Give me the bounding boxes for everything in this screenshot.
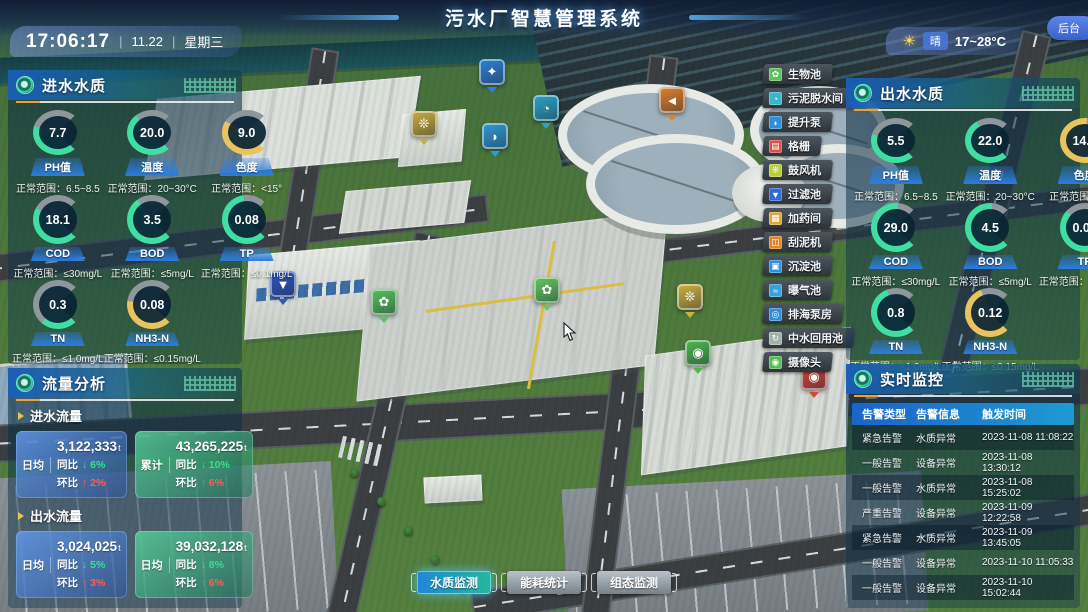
map-building: [339, 180, 471, 234]
pump-marker-icon: ◗: [482, 123, 508, 149]
facility-button-提升泵[interactable]: ◗提升泵: [762, 112, 833, 132]
metric-name: 环比: [57, 575, 78, 590]
arrow-up-icon: ↑ 3%: [82, 577, 105, 589]
alarm-info: 水质异常: [916, 530, 982, 545]
dot-pattern-decoration: [1022, 86, 1074, 101]
flow-card-body: 3,122,333t同比↓ 6%环比↑ 2%: [57, 439, 121, 490]
horn-marker-map-marker[interactable]: ◄: [659, 87, 685, 121]
gauge-label: 色度: [220, 158, 274, 176]
alarm-time: 2023-11-08 13:30:12: [982, 452, 1074, 474]
filter-pool-icon: ▼: [769, 188, 782, 201]
gauge-ring: 5.5: [871, 118, 921, 163]
facility-button-生物池[interactable]: ✿生物池: [762, 64, 833, 84]
map-building: [423, 475, 482, 504]
gauge-value: 0.3: [33, 280, 83, 329]
facility-button-沉淀池[interactable]: ▣沉淀池: [762, 256, 833, 276]
gauge-label: TP: [1058, 255, 1088, 269]
bottom-tab-组态监测[interactable]: 组态监测: [597, 571, 671, 594]
flow-unit: t: [118, 443, 121, 453]
bio-marker-map-marker[interactable]: ✿: [371, 289, 397, 323]
marker-pointer: [809, 392, 819, 398]
gauge-label: PH值: [869, 166, 923, 184]
gauge-色度: 9.0色度正常范围：<15°: [211, 110, 282, 195]
alarm-time: 2023-11-09 13:45:05: [982, 527, 1074, 549]
facility-button-过滤池[interactable]: ▼过滤池: [762, 184, 833, 204]
outlet-water-quality-panel: 出水水质 5.5PH值正常范围：6.5~8.522.0温度正常范围：20~30°…: [846, 78, 1080, 360]
alarm-type: 一般告警: [852, 555, 916, 570]
aeration-pool-icon: ≈: [769, 284, 782, 297]
panel-bullet-icon: [854, 370, 872, 388]
tree: [377, 497, 386, 506]
facility-button-污泥脱水间[interactable]: ◔污泥脱水间: [762, 88, 855, 108]
flow-card-tag: 日均: [141, 557, 170, 573]
gauge-label: PH值: [31, 158, 85, 176]
clock-widget: 17:06:17 | 11.22 | 星期三: [10, 26, 241, 57]
gauge-NH3-N: 0.12NH3-N正常范围：≤0.15mg/L: [942, 288, 1039, 373]
gauge-value: 18.1: [33, 195, 83, 244]
metric-row: 环比↑ 3%: [57, 575, 121, 590]
gauge-TP: 0.07TP正常范围：≤0.1mg/L: [1039, 203, 1088, 288]
panel-header: 流量分析: [8, 368, 242, 398]
panel-header: 进水水质: [8, 70, 242, 100]
gauge-ring: 3.5: [127, 195, 177, 244]
flow-value: 3,024,025t: [57, 539, 121, 554]
flow-unit: t: [244, 543, 247, 553]
gauge-温度: 22.0温度正常范围：20~30°C: [946, 118, 1035, 203]
flow-card: 日均3,024,025t同比↓ 5%环比↑ 3%: [16, 531, 127, 598]
facility-button-label: 摄像头: [788, 354, 821, 370]
flow-card-tag: 累计: [141, 457, 170, 473]
alarm-row: 一般告警设备异常2023-11-10 11:05:33: [852, 550, 1074, 575]
gauge-BOD: 3.5BOD正常范围：≤5mg/L: [111, 195, 194, 280]
alarm-info: 设备异常: [916, 505, 982, 520]
panel-bullet-icon: [854, 84, 872, 102]
gauge-value: 9.0: [222, 110, 272, 155]
panel-bullet-icon: [16, 374, 34, 392]
dot-pattern-decoration: [184, 376, 236, 391]
facility-button-list: ✿生物池◔污泥脱水间◗提升泵▤格栅❊鼓风机▼过滤池▦加药间◫刮泥机▣沉淀池≈曝气…: [763, 64, 854, 372]
flow-unit: t: [118, 543, 121, 553]
alarm-info: 设备异常: [916, 555, 982, 570]
clock-date: 11.22: [131, 34, 163, 49]
metric-row: 同比↓ 10%: [176, 457, 247, 472]
weather-widget: ☀ 晴 17~28°C: [886, 27, 1022, 55]
facility-button-格栅[interactable]: ▤格栅: [762, 136, 822, 156]
gauge-label: NH3-N: [963, 340, 1017, 354]
facility-button-label: 沉淀池: [788, 258, 821, 274]
page-title: 污水厂智慧管理系统: [445, 4, 643, 31]
flow-card-body: 39,032,128t同比↓ 8%环比↑ 6%: [176, 539, 247, 590]
arrow-down-icon: ↓ 6%: [82, 459, 105, 471]
flow-value: 43,265,225t: [176, 439, 247, 454]
dot-pattern-decoration: [184, 78, 236, 93]
gauge-ring: 14.0: [1060, 118, 1088, 163]
header-accent-right: [689, 15, 809, 20]
flow-sections: 进水流量日均3,122,333t同比↓ 6%环比↑ 2%累计43,265,225…: [8, 406, 242, 598]
alarm-time: 2023-11-09 12:22:58: [982, 502, 1074, 524]
alarm-column-header: 触发时间: [982, 406, 1074, 422]
alarm-row: 紧急告警水质异常2023-11-08 11:08:22: [852, 425, 1074, 450]
sediment-pool-icon: ▣: [769, 260, 782, 273]
gauge-normal-range: 正常范围：<15°: [1049, 188, 1088, 203]
gauge-ring: 22.0: [965, 118, 1015, 163]
weather-condition: 晴: [923, 32, 948, 50]
flow-card-body: 3,024,025t同比↓ 5%环比↑ 3%: [57, 539, 121, 590]
flow-section-label: 出水流量: [18, 506, 242, 525]
sea-pump-icon: ◎: [769, 308, 782, 321]
flow-card-tag: 日均: [22, 457, 51, 473]
alarm-type: 紧急告警: [852, 430, 916, 445]
gauge-normal-range: 正常范围：6.5~8.5: [16, 180, 100, 195]
gauge-value: 3.5: [127, 195, 177, 244]
gauge-TN: 0.3TN正常范围：≤1.0mg/L: [12, 280, 104, 365]
facility-button-刮泥机[interactable]: ◫刮泥机: [762, 232, 833, 252]
divider: |: [172, 34, 175, 49]
facility-button-鼓风机[interactable]: ❊鼓风机: [762, 160, 833, 180]
gauge-normal-range: 正常范围：<15°: [211, 180, 282, 195]
gauge-normal-range: 正常范围：≤30mg/L: [851, 273, 940, 288]
dosing-room-icon: ▦: [769, 212, 782, 225]
gauge-value: 29.0: [871, 203, 921, 252]
flow-card: 日均3,122,333t同比↓ 6%环比↑ 2%: [16, 431, 127, 498]
gauge-value: 14.0: [1060, 118, 1088, 163]
marker-pointer: [541, 123, 551, 129]
gauge-normal-range: 正常范围：≤5mg/L: [111, 265, 194, 280]
gauge-ring: 0.08: [222, 195, 272, 244]
gauge-ring: 0.8: [871, 288, 921, 337]
gauge-label: 温度: [125, 158, 179, 176]
gauge-ring: 18.1: [33, 195, 83, 244]
alarm-time: 2023-11-10 11:05:33: [982, 557, 1074, 568]
gauge-ring: 0.3: [33, 280, 83, 329]
outlet-gauge-grid: 5.5PH值正常范围：6.5~8.522.0温度正常范围：20~30°C14.0…: [846, 108, 1080, 373]
arrow-down-icon: ↓ 5%: [82, 559, 105, 571]
alarm-type: 一般告警: [852, 480, 916, 495]
gauge-ring: 4.5: [965, 203, 1015, 252]
alarm-row: 紧急告警水质异常2023-11-09 13:45:05: [852, 525, 1074, 550]
flow-card-row: 日均3,122,333t同比↓ 6%环比↑ 2%累计43,265,225t同比↓…: [8, 431, 242, 498]
beaker-marker-icon: ✦: [479, 59, 505, 85]
fan-marker-map-marker[interactable]: ❊: [677, 284, 703, 318]
gauge-normal-range: 正常范围：≤1.0mg/L: [12, 350, 104, 365]
arrow-down-icon: ↓ 10%: [201, 459, 230, 471]
facility-button-label: 排海泵房: [788, 306, 832, 322]
clock-weekday: 星期三: [184, 32, 223, 51]
marker-pointer: [693, 368, 703, 374]
facility-button-label: 提升泵: [788, 114, 821, 130]
facility-button-曝气池[interactable]: ≈曝气池: [762, 280, 833, 300]
gauge-label: BOD: [963, 255, 1017, 269]
gauge-label: NH3-N: [125, 332, 179, 346]
metric-name: 环比: [57, 475, 78, 490]
panel-title: 实时监控: [880, 369, 944, 390]
panel-title: 出水水质: [880, 83, 944, 104]
fan-marker-map-marker[interactable]: ❊: [411, 111, 437, 145]
alarm-info: 设备异常: [916, 455, 982, 470]
facility-button-label: 格栅: [788, 138, 810, 154]
gauge-normal-range: 正常范围：≤0.1mg/L: [201, 265, 293, 280]
marker-pointer: [379, 317, 389, 323]
gauge-value: 0.07: [1060, 203, 1088, 252]
gauge-value: 22.0: [965, 118, 1015, 163]
gauge-value: 0.8: [871, 288, 921, 337]
metric-name: 同比: [176, 457, 197, 472]
dot-pattern-decoration: [1022, 372, 1074, 387]
alarm-info: 水质异常: [916, 430, 982, 445]
gauge-normal-range: 正常范围：6.5~8.5: [854, 188, 938, 203]
grille-icon: ▤: [769, 140, 782, 153]
arrow-up-icon: ↑ 2%: [82, 477, 105, 489]
gauge-ring: 29.0: [871, 203, 921, 252]
facility-button-排海泵房[interactable]: ◎排海泵房: [762, 304, 844, 324]
facility-button-加药间[interactable]: ▦加药间: [762, 208, 833, 228]
marker-pointer: [542, 305, 552, 311]
gauge-label: COD: [869, 255, 923, 269]
gauge-value: 0.12: [965, 288, 1015, 337]
gauge-normal-range: 正常范围：≤0.15mg/L: [104, 350, 201, 365]
sludge-dewater-icon: ◔: [769, 92, 782, 105]
facility-button-label: 中水回用池: [788, 330, 843, 346]
facility-button-label: 刮泥机: [788, 234, 821, 250]
triangle-icon: [18, 512, 24, 520]
metric-name: 环比: [176, 575, 197, 590]
reuse-pool-icon: ↻: [769, 332, 782, 345]
gauge-normal-range: 正常范围：20~30°C: [108, 180, 197, 195]
metric-name: 同比: [57, 457, 78, 472]
alarm-time: 2023-11-10 15:02:44: [982, 577, 1074, 599]
facility-button-label: 曝气池: [788, 282, 821, 298]
panel-bullet-icon: [16, 76, 34, 94]
marker-pointer: [667, 115, 677, 121]
metric-row: 环比↑ 6%: [176, 575, 247, 590]
horn-marker-icon: ◄: [659, 87, 685, 113]
gauge-COD: 29.0COD正常范围：≤30mg/L: [851, 203, 940, 288]
gauge-value: 0.08: [127, 280, 177, 329]
bottom-tab-能耗统计[interactable]: 能耗统计: [507, 571, 581, 594]
bottom-tab-水质监测[interactable]: 水质监测: [417, 571, 491, 594]
gauge-value: 5.5: [871, 118, 921, 163]
bio-marker-map-marker[interactable]: ✿: [534, 277, 560, 311]
gauge-色度: 14.0色度正常范围：<15°: [1049, 118, 1088, 203]
tree: [404, 526, 413, 535]
facility-button-label: 过滤池: [788, 186, 821, 202]
gauge-label: TP: [220, 247, 274, 261]
gauge-ring: 0.07: [1060, 203, 1088, 252]
gauge-COD: 18.1COD正常范围：≤30mg/L: [13, 195, 102, 280]
sun-icon: ☀: [902, 32, 915, 50]
gauge-ring: 0.08: [127, 280, 177, 329]
camera-marker-map-marker[interactable]: ◉: [685, 340, 711, 374]
gauge-label: TN: [869, 340, 923, 354]
facility-button-label: 生物池: [788, 66, 821, 82]
bottom-tab-bar: 水质监测能耗统计组态监测: [417, 571, 671, 594]
metric-row: 同比↓ 8%: [176, 557, 247, 572]
dewater-marker-map-marker[interactable]: ◔: [533, 95, 559, 129]
panel-title: 流量分析: [42, 373, 106, 394]
tree: [350, 468, 359, 477]
gauge-ring: 20.0: [127, 110, 177, 155]
gauge-value: 0.08: [222, 195, 272, 244]
gauge-PH值: 5.5PH值正常范围：6.5~8.5: [854, 118, 938, 203]
marker-pointer: [490, 151, 500, 157]
fan-marker-icon: ❊: [411, 111, 437, 137]
gauge-温度: 20.0温度正常范围：20~30°C: [108, 110, 197, 195]
facility-button-label: 加药间: [788, 210, 821, 226]
gauge-label: COD: [31, 247, 85, 261]
inlet-water-quality-panel: 进水水质 7.7PH值正常范围：6.5~8.520.0温度正常范围：20~30°…: [8, 70, 242, 364]
alarm-table-body: 紧急告警水质异常2023-11-08 11:08:22一般告警设备异常2023-…: [846, 425, 1080, 600]
dewater-marker-icon: ◔: [533, 95, 559, 121]
flow-analysis-panel: 流量分析 进水流量日均3,122,333t同比↓ 6%环比↑ 2%累计43,26…: [8, 368, 242, 608]
beaker-marker-map-marker[interactable]: ✦: [479, 59, 505, 93]
flow-card-body: 43,265,225t同比↓ 10%环比↑ 6%: [176, 439, 247, 490]
gauge-TN: 0.8TN正常范围：≤1.0mg/L: [850, 288, 942, 373]
pump-marker-map-marker[interactable]: ◗: [482, 123, 508, 157]
gauge-ring: 0.12: [965, 288, 1015, 337]
gauge-ring: 9.0: [222, 110, 272, 155]
clock-time: 17:06:17: [26, 31, 110, 53]
alarm-row: 一般告警水质异常2023-11-08 15:25:02: [852, 475, 1074, 500]
gauge-label: 色度: [1058, 166, 1088, 184]
metric-row: 环比↑ 6%: [176, 475, 247, 490]
alarm-info: 水质异常: [916, 480, 982, 495]
panel-header: 实时监控: [846, 364, 1080, 394]
marker-pointer: [419, 139, 429, 145]
gauge-normal-range: 正常范围：≤5mg/L: [949, 273, 1032, 288]
flow-card: 日均39,032,128t同比↓ 8%环比↑ 6%: [135, 531, 253, 598]
triangle-icon: [18, 412, 24, 420]
flow-card: 累计43,265,225t同比↓ 10%环比↑ 6%: [135, 431, 253, 498]
camera-marker-icon: ◉: [685, 340, 711, 366]
metric-row: 同比↓ 6%: [57, 457, 121, 472]
marker-pointer: [278, 299, 288, 305]
panel-header: 出水水质: [846, 78, 1080, 108]
flow-section-label: 进水流量: [18, 406, 242, 425]
gauge-value: 7.7: [33, 110, 83, 155]
header-accent-left: [279, 15, 399, 20]
alarm-type: 一般告警: [852, 580, 916, 595]
marker-pointer: [487, 87, 497, 93]
gauge-normal-range: 正常范围：20~30°C: [946, 188, 1035, 203]
gauge-TP: 0.08TP正常范围：≤0.1mg/L: [201, 195, 293, 280]
camera-icon: ◉: [769, 356, 782, 369]
alarm-type: 严重告警: [852, 505, 916, 520]
flow-unit: t: [244, 443, 247, 453]
facility-button-中水回用池[interactable]: ↻中水回用池: [762, 328, 855, 348]
flow-card-row: 日均3,024,025t同比↓ 5%环比↑ 3%日均39,032,128t同比↓…: [8, 531, 242, 598]
mud-scraper-icon: ◫: [769, 236, 782, 249]
arrow-down-icon: ↓ 8%: [201, 559, 224, 571]
blower-fan-icon: ❊: [769, 164, 782, 177]
gauge-PH值: 7.7PH值正常范围：6.5~8.5: [16, 110, 100, 195]
gauge-value: 4.5: [965, 203, 1015, 252]
bio-marker-icon: ✿: [534, 277, 560, 303]
fan-marker-icon: ❊: [677, 284, 703, 310]
bio-pool-icon: ✿: [769, 68, 782, 81]
metric-name: 同比: [176, 557, 197, 572]
gauge-normal-range: 正常范围：≤0.1mg/L: [1039, 273, 1088, 288]
gauge-value: 20.0: [127, 110, 177, 155]
alarm-column-header: 告警类型: [852, 406, 916, 422]
metric-row: 环比↑ 2%: [57, 475, 121, 490]
facility-button-摄像头[interactable]: ◉摄像头: [762, 352, 833, 372]
alarm-column-header: 告警信息: [916, 406, 982, 422]
alarm-row: 一般告警设备异常2023-11-08 13:30:12: [852, 450, 1074, 475]
alarm-row: 一般告警设备异常2023-11-10 15:02:44: [852, 575, 1074, 600]
realtime-monitor-panel: 实时监控 告警类型告警信息触发时间 紧急告警水质异常2023-11-08 11:…: [846, 364, 1080, 608]
gauge-label: BOD: [125, 247, 179, 261]
facility-button-label: 鼓风机: [788, 162, 821, 178]
flow-card-tag: 日均: [22, 557, 51, 573]
tree: [431, 555, 440, 564]
alarm-info: 设备异常: [916, 580, 982, 595]
lift-pump-icon: ◗: [769, 116, 782, 129]
marker-pointer: [685, 312, 695, 318]
backstage-button[interactable]: 后台: [1047, 16, 1088, 40]
metric-row: 同比↓ 5%: [57, 557, 121, 572]
alarm-time: 2023-11-08 15:25:02: [982, 477, 1074, 499]
alarm-type: 紧急告警: [852, 530, 916, 545]
panel-title: 进水水质: [42, 75, 106, 96]
flow-section: 进水流量日均3,122,333t同比↓ 6%环比↑ 2%累计43,265,225…: [8, 406, 242, 498]
gauge-label: 温度: [963, 166, 1017, 184]
inlet-gauge-grid: 7.7PH值正常范围：6.5~8.520.0温度正常范围：20~30°C9.0色…: [8, 100, 242, 365]
alarm-type: 一般告警: [852, 455, 916, 470]
flow-value: 3,122,333t: [57, 439, 121, 454]
metric-name: 环比: [176, 475, 197, 490]
facility-button-label: 污泥脱水间: [788, 90, 843, 106]
temperature-range: 17~28°C: [955, 34, 1006, 49]
alarm-table-header: 告警类型告警信息触发时间: [852, 403, 1074, 425]
flow-value: 39,032,128t: [176, 539, 247, 554]
divider: |: [119, 34, 122, 49]
metric-name: 同比: [57, 557, 78, 572]
alarm-time: 2023-11-08 11:08:22: [982, 432, 1074, 443]
flow-section: 出水流量日均3,024,025t同比↓ 5%环比↑ 3%日均39,032,128…: [8, 506, 242, 598]
alarm-row: 严重告警设备异常2023-11-09 12:22:58: [852, 500, 1074, 525]
gauge-label: TN: [31, 332, 85, 346]
gauge-NH3-N: 0.08NH3-N正常范围：≤0.15mg/L: [104, 280, 201, 365]
arrow-up-icon: ↑ 6%: [201, 477, 224, 489]
gauge-BOD: 4.5BOD正常范围：≤5mg/L: [949, 203, 1032, 288]
bio-marker-icon: ✿: [371, 289, 397, 315]
gauge-normal-range: 正常范围：≤30mg/L: [13, 265, 102, 280]
gauge-ring: 7.7: [33, 110, 83, 155]
arrow-up-icon: ↑ 6%: [201, 577, 224, 589]
